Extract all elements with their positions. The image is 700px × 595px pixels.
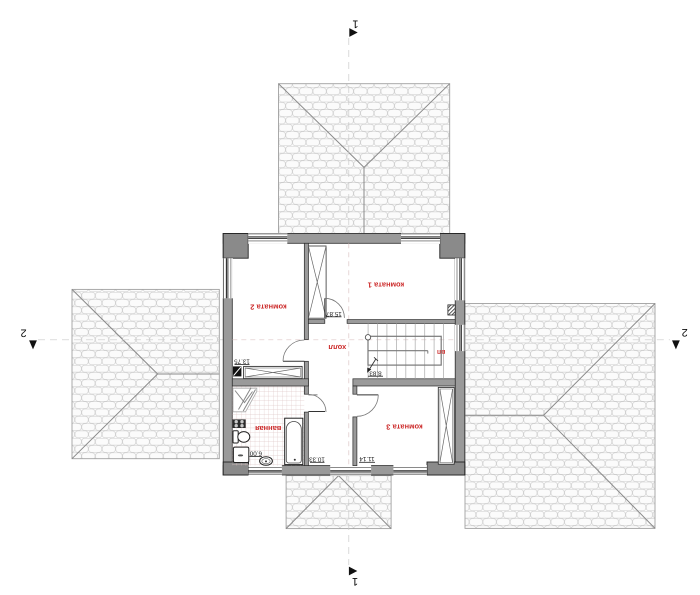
svg-text:15.87: 15.87	[325, 310, 341, 317]
svg-text:11.14: 11.14	[359, 455, 375, 462]
svg-text:вп: вп	[437, 348, 446, 355]
svg-text:13.75: 13.75	[234, 358, 250, 365]
svg-text:ванная: ванная	[255, 424, 281, 433]
svg-text:1: 1	[352, 18, 358, 30]
svg-text:2: 2	[21, 326, 27, 338]
svg-text:10.33: 10.33	[309, 455, 325, 462]
svg-text:комната 2: комната 2	[250, 303, 287, 312]
svg-text:1: 1	[352, 575, 358, 587]
svg-text:6.00: 6.00	[249, 450, 262, 457]
svg-text:холл: холл	[328, 343, 346, 352]
svg-text:2: 2	[682, 326, 688, 338]
svg-text:8.83: 8.83	[369, 369, 382, 376]
svg-text:комната 3: комната 3	[386, 423, 423, 432]
svg-text:комната 1: комната 1	[368, 280, 405, 289]
